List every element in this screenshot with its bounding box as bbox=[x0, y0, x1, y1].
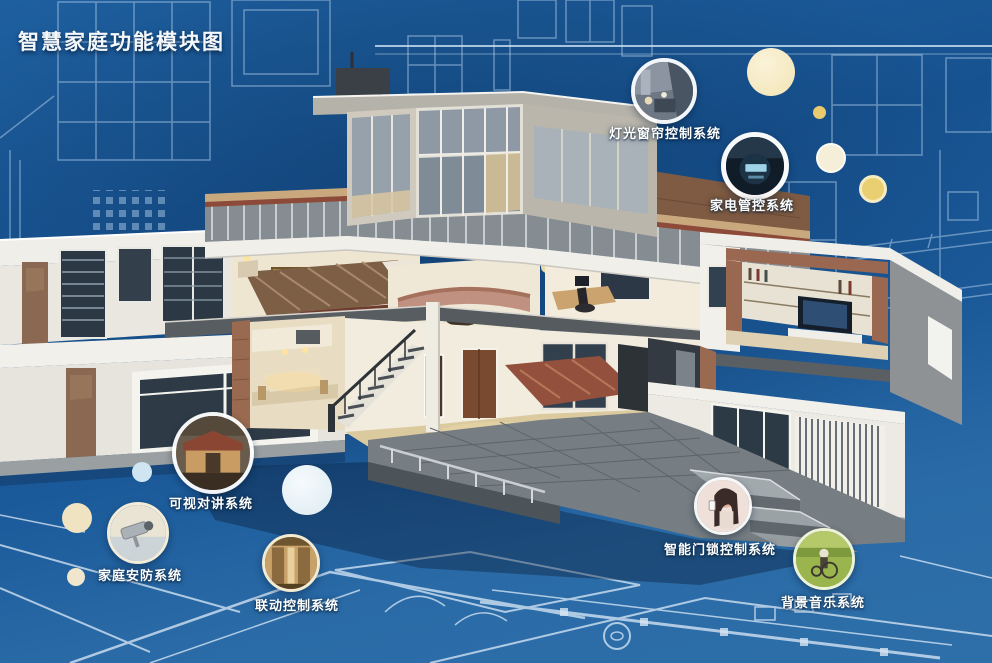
decor-dot bbox=[62, 503, 92, 533]
appliance-panel-photo bbox=[726, 137, 784, 195]
callout-label-intercom: 可视对讲系统 bbox=[169, 493, 253, 512]
cctv-camera-photo bbox=[110, 505, 166, 561]
callout-lighting-curtain-control bbox=[631, 58, 697, 124]
callout-label-linkage: 联动控制系统 bbox=[255, 595, 339, 614]
callout-linkage-control bbox=[262, 534, 320, 592]
callout-label-appliance: 家电管控系统 bbox=[710, 195, 794, 214]
elevator-doors-photo bbox=[265, 537, 317, 589]
callout-smart-door-lock bbox=[694, 477, 752, 535]
penthouse bbox=[313, 52, 657, 237]
callout-label-lighting: 灯光窗帘控制系统 bbox=[609, 123, 721, 142]
decor-dot bbox=[813, 106, 826, 119]
entrance-photo bbox=[176, 416, 250, 490]
callout-video-intercom bbox=[172, 412, 254, 494]
decor-dot bbox=[816, 143, 846, 173]
callout-label-door-lock: 智能门锁控制系统 bbox=[664, 539, 776, 558]
decor-dot bbox=[132, 462, 152, 482]
callout-appliance-control bbox=[721, 132, 789, 200]
lighting-scene-photo bbox=[635, 62, 693, 120]
garden-scene-photo bbox=[796, 531, 852, 587]
page-title: 智慧家庭功能模块图 bbox=[18, 26, 225, 56]
decor-dot bbox=[859, 175, 887, 203]
callout-background-music bbox=[793, 528, 855, 590]
callout-home-security bbox=[107, 502, 169, 564]
woman-with-phone-photo bbox=[697, 480, 749, 532]
callout-label-music: 背景音乐系统 bbox=[781, 592, 865, 611]
callout-label-security: 家庭安防系统 bbox=[98, 565, 182, 584]
decor-dot bbox=[747, 48, 795, 96]
decor-dot bbox=[282, 465, 332, 515]
smart-home-infographic: 灯光窗帘控制系统 家电管控系统 可视对讲系统 家庭安防系统 联动控制系统 智能门… bbox=[0, 0, 992, 663]
decor-dot bbox=[67, 568, 85, 586]
